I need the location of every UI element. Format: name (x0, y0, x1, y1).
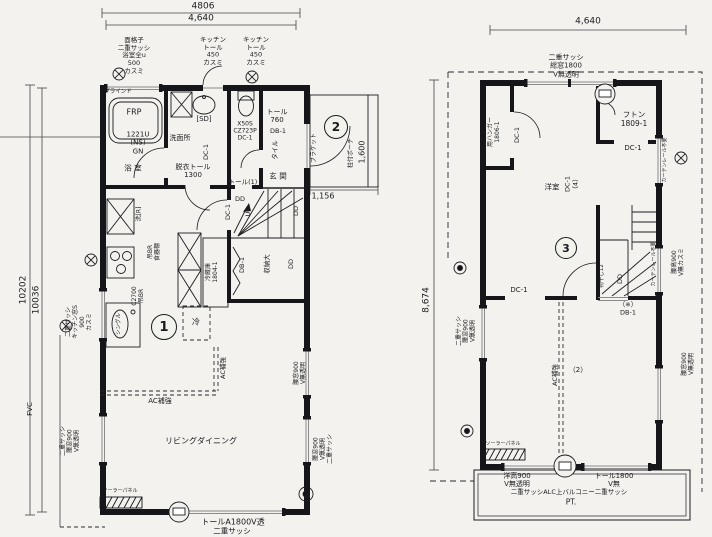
note-bottom-window: トールA1800V透 (201, 517, 264, 526)
closet-futon: フトン 1809-1 (621, 111, 648, 129)
note-toilet: X50S CZ723P DC-1 (233, 120, 256, 141)
note-left-window-2f: 二重サッシ 腰窓900 V無透明 (455, 316, 476, 346)
label-frp: FRP (127, 107, 142, 116)
note-ac-2f-n: （2） (569, 366, 587, 374)
dim-4640: 4,640 (188, 14, 214, 25)
door-dc1-hall: DC-1 (225, 204, 233, 220)
dim-1600: 1,600 (357, 141, 366, 164)
door-dc1-mid: DC-1 (510, 286, 527, 294)
closet-large: 収納大 (264, 254, 272, 274)
note-left-window: 二重サッシ 腰窓900 V無透明 (59, 426, 80, 456)
note-tall-760: トール 760 (267, 108, 288, 125)
note-tall-1: トール(1) (229, 179, 258, 187)
dim-1156: 1,156 (312, 191, 335, 200)
door-db1-2f: （※） DB-1 (619, 301, 637, 316)
closet-hanger: 用ハンガー 1806-1 (487, 117, 501, 147)
note-c2700: C2700 吊BR (131, 286, 145, 305)
note-ac-2f: AC補強 (552, 364, 560, 386)
note-right-window-2: 腰窓900 V無透明 二重サッシ (312, 434, 333, 464)
note-right-window-1: 腰窓900 V無透明 (293, 361, 307, 384)
room-bath: 浴 室 (124, 165, 141, 174)
room-entry: 玄 関 (269, 173, 286, 182)
note-sink: シングル (116, 313, 122, 335)
floor1-room-number: 1 (151, 314, 177, 340)
note-bath-window: 面格子 二重サッシ 浴室全u 500 カスミ (118, 37, 151, 75)
note-top-window: 二重サッシ 総窓1800 V無透明 (549, 54, 584, 79)
stairs-up: UP (245, 208, 253, 217)
note-balcony: 二重サッシALC上バルコニー二重サッシ (511, 489, 627, 497)
note-stair-window: 腰高900 V無カスミ (671, 248, 685, 276)
dim-4806: 4806 (192, 2, 215, 13)
note-right-window-2f: 腰窓900 V無透明 (681, 352, 695, 375)
note-fridge: 冷蔵庫 1804-1 (205, 261, 219, 282)
note-bottom-window2: 二重サッシ (213, 528, 251, 537)
note-balcony-win-1: 洋高900 V無透明 (503, 472, 530, 489)
note-tile: タイル (272, 140, 280, 160)
labels-layer: 48064,6401020210036面格子 二重サッシ 浴室全u 500 カス… (0, 0, 712, 537)
door-dc1-futon: DC-1 (624, 144, 641, 152)
note-bracket: ブラケット (310, 133, 317, 163)
note-hang-cupboard: 吊BR 食器棚 (147, 243, 161, 261)
dim-8674: 8,674 (422, 287, 433, 313)
note-curtain-1: カーテンレール不要 (663, 137, 669, 182)
note-curtain-2: カーテンレール不要 (652, 241, 658, 286)
door-db1-entry: DB-1 (270, 128, 286, 136)
door-dc1-closet2f: DC-1 (514, 127, 522, 143)
label-pt: PT. (566, 499, 577, 508)
floorplan-sheet: 48064,6401020210036面格子 二重サッシ 浴室全u 500 カス… (0, 0, 712, 537)
label-fvc: FVC (26, 402, 34, 416)
door-db1-closet: DB-1 (239, 257, 247, 273)
dim-4640-2f: 4,640 (575, 17, 601, 28)
note-balcony-win-2: トール1800 V無 (595, 472, 634, 489)
dim-10202: 10202 (19, 276, 30, 305)
door-dd-stair: DD (617, 274, 625, 284)
floor1-room-number: 2 (324, 115, 348, 139)
floor2-room-number: 3 (555, 237, 577, 259)
room-western: 洋室 (545, 184, 560, 193)
dim-10036: 10036 (32, 286, 43, 315)
room-living: リビングダイニング (165, 436, 237, 445)
door-dd-right: DD (293, 206, 301, 216)
label-sd: [SD] (196, 115, 211, 123)
solar-panel-label-2f: ソーラーパネル (486, 442, 521, 448)
door-dd-closet: DD (288, 259, 296, 269)
note-washer: 洗[R] (135, 207, 142, 222)
door-dc1-wash: DC-1 (203, 144, 211, 160)
note-tall-1300: 脱衣トール 1300 (176, 163, 211, 180)
solar-panel-label: ソーラーパネル (103, 489, 138, 495)
note-blind: ブラインド (104, 89, 132, 95)
label-fridge-short: 冷 (192, 317, 200, 326)
note-kitchen-window: 二重サッシ キッチン窓S 900 カスミ (65, 305, 93, 339)
room-western-door: DC-1 （4） (564, 175, 579, 192)
note-kitchen-tall-1: キッチン トール 450 カスミ (200, 37, 226, 68)
note-monohoshi: 物干し12 (599, 264, 605, 288)
note-ac-2: AC補強 (220, 357, 228, 379)
note-porch: 柱付ポーチ (347, 138, 354, 168)
door-dd-hall: DD (235, 196, 245, 204)
label-tub-model: 1221U (NS) GN (127, 131, 150, 156)
note-kitchen-tall-2: キッチン トール 450 カスミ (243, 37, 269, 68)
note-ac-1: AC補強 (148, 397, 172, 405)
room-washroom: 洗面所 (170, 134, 191, 142)
